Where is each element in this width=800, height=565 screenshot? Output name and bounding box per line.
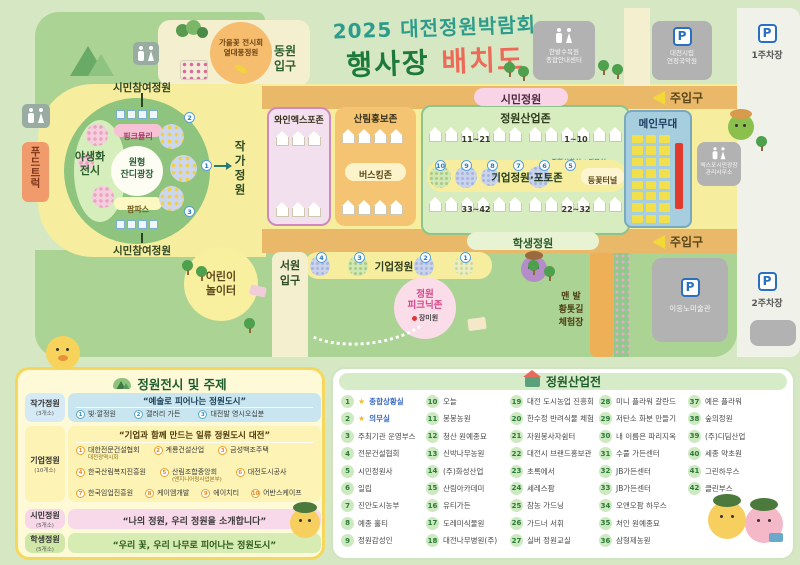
mascot-eye-icon bbox=[299, 519, 302, 522]
exhibit-name: 한국산림복지진흥원 bbox=[88, 468, 146, 477]
booth-name: 삼형제농원 bbox=[616, 535, 651, 546]
flower-plot-icon bbox=[159, 124, 184, 149]
section-items-row: 1대한전문건설협회대전광역시회2계룡건설산업3금성백조주택 bbox=[76, 446, 269, 462]
tent-icon bbox=[292, 137, 305, 146]
seat-icon bbox=[646, 169, 657, 177]
wisteria-tunnel-pill: 등꽃터널 bbox=[581, 168, 624, 185]
plot-number-badge: 2 bbox=[420, 252, 431, 263]
tent-icon bbox=[342, 135, 355, 144]
exhibit-item: 2계룡건설산업 bbox=[154, 446, 205, 462]
exhibit-number: 8 bbox=[145, 489, 154, 498]
seowon-gate-label: 서원 입구 bbox=[272, 258, 308, 288]
section-label-student: 학생정원 (5개소) bbox=[25, 533, 65, 553]
booth-item: 26가드너 서휘 bbox=[510, 517, 594, 530]
booth-item: 34오앤오팜 하우스 bbox=[599, 499, 676, 512]
stall-icon bbox=[127, 220, 136, 229]
booth-item: 7진안도시농부 bbox=[341, 499, 416, 512]
main-stage-zone: 메인무대 bbox=[624, 110, 692, 228]
mountain-icon bbox=[88, 54, 114, 76]
exhibit-name: 계룡건설산업 bbox=[166, 446, 205, 455]
stall-row bbox=[116, 220, 158, 229]
restroom-figures-icon bbox=[138, 46, 155, 62]
booth-item: 32JB가든센터 bbox=[599, 465, 676, 478]
mascot-eye-icon bbox=[720, 515, 723, 518]
info-center-label: 한밭수목원 종합안내센터 bbox=[533, 48, 595, 64]
booth-name: 미니 플라워 갈란드 bbox=[616, 396, 676, 407]
tent-icon bbox=[308, 208, 321, 217]
seat-icon bbox=[659, 158, 670, 166]
booth-item: 13신박나무농원 bbox=[426, 447, 497, 460]
tent-icon bbox=[276, 208, 289, 217]
busking-zone-label: 버스킹존 bbox=[359, 171, 392, 181]
mascot-icon bbox=[708, 501, 746, 539]
citizen-participation-label-bottom: 시민참여정원 bbox=[104, 243, 180, 258]
booth-number: 22 bbox=[510, 447, 523, 460]
industry-expo-panel: 정원산업전 1★종합상황실2★의무실3주최기관 운영부스4전문건설협회5시민정원… bbox=[331, 367, 795, 560]
booth-name: 오늘 bbox=[443, 396, 457, 407]
booth-item: 23초록에서 bbox=[510, 465, 594, 478]
industry-panel-header: 정원산업전 bbox=[339, 373, 787, 390]
tent-group-label: 1~10 bbox=[529, 135, 623, 144]
booth-name: 참농 가드닝 bbox=[527, 500, 564, 511]
booth-name: 예종 홀티 bbox=[358, 518, 388, 529]
star-icon: ★ bbox=[358, 398, 365, 406]
parking1-area: P 1주차장 bbox=[737, 24, 797, 61]
exhibit-number: 2 bbox=[134, 410, 143, 419]
seat-icon bbox=[659, 169, 670, 177]
main-gate-top-label: 주입구 bbox=[670, 89, 703, 106]
exhibit-name: 갤러리 가든 bbox=[146, 410, 180, 419]
gate-arrow-icon bbox=[652, 91, 665, 105]
stall-icon bbox=[138, 110, 147, 119]
exhibit-subname: 대전광역시회 bbox=[88, 455, 140, 462]
main-gate-bottom-label: 주입구 bbox=[670, 233, 703, 250]
section-items-row: 4한국산림복지진흥원5산림조합중앙회(엔지니어링사업본부)6대전도시공사 bbox=[76, 468, 286, 484]
mascot-icon bbox=[745, 505, 783, 543]
booth-name: 산림아카데미 bbox=[443, 483, 484, 494]
booth-name: (주)화성산업 bbox=[443, 466, 483, 477]
exhibition-panel-header: 정원전시 및 주제 bbox=[18, 374, 322, 393]
booth-number: 33 bbox=[599, 482, 612, 495]
stall-icon bbox=[127, 110, 136, 119]
seat-icon bbox=[659, 203, 670, 211]
seat-icon bbox=[659, 215, 670, 223]
booth-item: 24세레스팜 bbox=[510, 482, 594, 495]
booth-name: 실버 정원교실 bbox=[527, 535, 571, 546]
corp-garden-band-label: 기업정원 bbox=[372, 259, 416, 274]
stall-row bbox=[116, 110, 158, 119]
booth-name: 세레스팜 bbox=[527, 483, 555, 494]
section-quote: “예술로 피어나는 정원도시” bbox=[68, 395, 321, 407]
booth-number: 11 bbox=[426, 412, 439, 425]
booth-item: 1★종합상황실 bbox=[341, 395, 416, 408]
booth-name: 대전시 브랜드홍보관 bbox=[527, 448, 591, 459]
booth-number: 24 bbox=[510, 482, 523, 495]
artist-garden-arrow-icon bbox=[214, 165, 226, 167]
booth-number: 31 bbox=[599, 447, 612, 460]
seat-icon bbox=[646, 215, 657, 223]
plot-number-badge: 3 bbox=[354, 252, 365, 263]
tree-icon bbox=[182, 260, 193, 271]
section-label-text: 시민정원 bbox=[30, 510, 59, 521]
booth-number: 35 bbox=[599, 517, 612, 530]
food-truck-label: 푸드트럭 bbox=[28, 146, 43, 188]
booth-item: 12청산 원예종묘 bbox=[426, 430, 497, 443]
exhibit-name: 한국임업진흥원 bbox=[88, 489, 133, 498]
booth-item: 8예종 홀티 bbox=[341, 517, 416, 530]
booth-name: 도레미식물원 bbox=[443, 518, 484, 529]
plot-number-badge: 2 bbox=[184, 112, 195, 123]
gate-path-top bbox=[624, 8, 650, 86]
tree-icon bbox=[244, 318, 255, 329]
flower-plot-icon bbox=[159, 186, 184, 211]
industry-panel-title: 정원산업전 bbox=[546, 373, 601, 390]
music-center-box: P 대전시립 연정국악원 bbox=[652, 21, 712, 80]
booth-item: 27실버 정원교실 bbox=[510, 534, 594, 547]
info-center-box: 한밭수목원 종합안내센터 bbox=[533, 21, 595, 80]
seat-icon bbox=[646, 192, 657, 200]
tent-group: 33~42 bbox=[429, 197, 523, 212]
booth-name: 봉봉농원 bbox=[443, 413, 471, 424]
poster-title-venue: 행사장 bbox=[346, 46, 430, 82]
watering-can-icon bbox=[769, 533, 783, 542]
exhibit-item: 10어반스케이프 bbox=[251, 489, 302, 498]
booth-number: 23 bbox=[510, 465, 523, 478]
section-count-text: (10개소) bbox=[34, 466, 55, 474]
booth-column: 1★종합상황실2★의무실3주최기관 운영부스4전문건설협회5시민정원사6일립7진… bbox=[341, 395, 416, 547]
exhibition-panel: 정원전시 및 주제 작가정원 (3개소) “예술로 피어나는 정원도시” 1빛·… bbox=[15, 367, 325, 560]
tent-row bbox=[276, 202, 321, 217]
parking-p: P bbox=[652, 27, 712, 46]
mascot-eye-icon bbox=[743, 124, 746, 127]
booth-name: (주)디딤산업 bbox=[705, 431, 745, 442]
poster-title: 2025 대전정원박람회 행사장 배치도 bbox=[299, 7, 571, 85]
booth-number: 4 bbox=[341, 447, 354, 460]
section-content-student: “우리 꽃, 우리 나무로 피어나는 정원도시” bbox=[68, 533, 321, 553]
tree-icon bbox=[196, 266, 207, 277]
circular-lawn: 원형 잔디광장 bbox=[111, 146, 163, 196]
booth-item: 41그린하우스 bbox=[688, 465, 745, 478]
mascot-hat-icon bbox=[730, 109, 752, 119]
booth-name: 초록에서 bbox=[527, 466, 555, 477]
mascot-eye-icon bbox=[66, 348, 69, 351]
citizen-garden-pill: 시민정원 bbox=[474, 88, 568, 106]
stall-icon bbox=[149, 220, 158, 229]
exhibit-name: 금성백조주택 bbox=[230, 446, 269, 455]
exhibit-name: 에이치티 bbox=[213, 489, 239, 498]
seat-icon bbox=[646, 158, 657, 166]
exhibit-item: 3대전발 영시오십분 bbox=[198, 410, 264, 419]
mascot-eye-icon bbox=[757, 519, 760, 522]
booth-number: 26 bbox=[510, 517, 523, 530]
expo-office-label: 엑스포시민광장 관리사무소 bbox=[697, 163, 741, 177]
booth-item: 25참농 가드닝 bbox=[510, 499, 594, 512]
exhibit-name-stack: 대전도시공사 bbox=[248, 468, 287, 477]
booth-number: 25 bbox=[510, 499, 523, 512]
tree-icon bbox=[612, 64, 623, 75]
exhibit-number: 1 bbox=[76, 410, 85, 419]
banana-icon bbox=[233, 63, 248, 75]
booth-name: 세종 약초원 bbox=[705, 448, 742, 459]
seat-icon bbox=[646, 135, 657, 143]
flowerbed-icon bbox=[180, 60, 208, 80]
stage-seats bbox=[632, 135, 670, 223]
wisteria-tunnel-label: 등꽃터널 bbox=[588, 176, 617, 185]
restroom-icon bbox=[22, 104, 50, 128]
exhibit-name: 대전발 영시오십분 bbox=[210, 410, 264, 419]
flower-cluster-icon bbox=[92, 186, 114, 208]
booth-item: 15산림아카데미 bbox=[426, 482, 497, 495]
plot-number-badge: 3 bbox=[184, 206, 195, 217]
booth-item: 30내 이름은 파리지옥 bbox=[599, 430, 676, 443]
section-content-citizen: “나의 정원, 우리 정원을 소개합니다” bbox=[68, 509, 321, 529]
forest-promo-label: 산림홍보존 bbox=[335, 111, 416, 125]
plot-number-badge: 1 bbox=[201, 160, 212, 171]
booth-name: JB가든센터 bbox=[616, 483, 651, 494]
pink-muhly-label: 핑크뮬리 bbox=[123, 132, 152, 141]
booth-number: 2 bbox=[341, 412, 354, 425]
divider bbox=[76, 407, 313, 408]
booth-name: 처인 원예종묘 bbox=[616, 518, 660, 529]
main-gate-top: 주입구 bbox=[652, 89, 703, 106]
seat-icon bbox=[632, 203, 643, 211]
exhibit-number: 7 bbox=[76, 489, 85, 498]
booth-name: JB가든센터 bbox=[616, 466, 651, 477]
tent-icon bbox=[308, 137, 321, 146]
tent-icon bbox=[276, 137, 289, 146]
tent-group-label: 11~21 bbox=[429, 135, 523, 144]
booth-number: 6 bbox=[341, 482, 354, 495]
plot-number-badge: 4 bbox=[316, 252, 327, 263]
clay-path bbox=[590, 253, 614, 357]
section-content-artist: “예술로 피어나는 정원도시” 1빛·깔정원2갤러리 가든3대전발 영시오십분 bbox=[68, 393, 321, 422]
barefoot-path-label: 맨 발 황톳길 체험장 bbox=[550, 291, 592, 330]
exhibit-name: 빛·깔정원 bbox=[88, 410, 116, 419]
booth-number: 34 bbox=[599, 499, 612, 512]
booth-item: 21자원봉사자쉼터 bbox=[510, 430, 594, 443]
section-label-text: 작가정원 bbox=[30, 398, 59, 409]
main-gate-bottom: 주입구 bbox=[652, 233, 703, 250]
booth-item: 3주최기관 운영부스 bbox=[341, 430, 416, 443]
plot-number-badge: 1 bbox=[460, 252, 471, 263]
garden-industry-label: 정원산업존 bbox=[423, 110, 628, 126]
seat-icon bbox=[659, 146, 670, 154]
restroom-figures-icon bbox=[533, 21, 595, 44]
booth-number: 18 bbox=[426, 534, 439, 547]
artist-garden-label: 작가정원 bbox=[232, 140, 248, 198]
forest-promo-zone: 산림홍보존 버스킹존 bbox=[335, 107, 416, 226]
exhibit-item: 1빛·깔정원 bbox=[76, 410, 116, 419]
exhibit-name: 대한전문건설협회 bbox=[88, 446, 140, 455]
booth-name: 대전나무병원(주) bbox=[443, 535, 497, 546]
parking1-label: 1주차장 bbox=[737, 48, 797, 61]
mascot-icon bbox=[728, 114, 754, 140]
garden-industry-zone: 정원산업존 11~21 1~10 ★ 종합상황실 / 의무실 10 9 8 7 … bbox=[421, 105, 630, 235]
food-truck-zone: 푸드트럭 bbox=[22, 142, 49, 202]
flower-plot-icon bbox=[170, 155, 197, 182]
booth-number: 38 bbox=[688, 412, 701, 425]
booth-number: 42 bbox=[688, 482, 701, 495]
booth-item: 9정원감성인 bbox=[341, 534, 416, 547]
booth-name: 가드너 서휘 bbox=[527, 518, 564, 529]
restroom-figures-icon bbox=[28, 108, 45, 124]
exhibit-number: 3 bbox=[218, 446, 227, 455]
exhibit-item: 7한국임업진흥원 bbox=[76, 489, 133, 498]
booth-number: 32 bbox=[599, 465, 612, 478]
booth-item: 35처인 원예종묘 bbox=[599, 517, 676, 530]
music-center-label: 대전시립 연정국악원 bbox=[652, 49, 712, 65]
parking2-area: P 2주차장 bbox=[737, 272, 797, 309]
tree-icon bbox=[756, 136, 767, 147]
expo-office-box: 엑스포시민광장 관리사무소 bbox=[697, 142, 741, 186]
seat-icon bbox=[632, 158, 643, 166]
mascot-hat-icon bbox=[525, 251, 543, 260]
section-count-text: (3개소) bbox=[36, 409, 54, 417]
autumn-flower-badge: 가을꽃 전시회 열대풍정원 bbox=[210, 22, 272, 84]
booth-number: 15 bbox=[426, 482, 439, 495]
booth-number: 16 bbox=[426, 499, 439, 512]
booth-number: 27 bbox=[510, 534, 523, 547]
mascot-icon bbox=[46, 336, 80, 370]
booth-item: 28미니 플라워 갈란드 bbox=[599, 395, 676, 408]
booth-name: 시민정원사 bbox=[358, 466, 393, 477]
seat-icon bbox=[646, 146, 657, 154]
booth-item: 20한수정 반려식물 체험 bbox=[510, 412, 594, 425]
tent-group-label: 33~42 bbox=[429, 205, 523, 214]
seat-icon bbox=[632, 135, 643, 143]
stage-icon bbox=[675, 143, 683, 209]
booth-name: 저탄소 화분 만들기 bbox=[616, 413, 676, 424]
booth-number: 13 bbox=[426, 447, 439, 460]
booth-number: 37 bbox=[688, 395, 701, 408]
section-content-corp: “기업과 함께 만드는 일류 정원도시 대전” 1대한전문건설협회대전광역시회2… bbox=[68, 426, 321, 502]
booth-number: 5 bbox=[341, 465, 354, 478]
exhibit-name-stack: 계룡건설산업 bbox=[166, 446, 205, 455]
mascot-icon bbox=[290, 508, 320, 538]
wine-expo-zone: 와인엑스포존 bbox=[267, 107, 331, 226]
parking2-label: 2주차장 bbox=[737, 296, 797, 309]
booth-name: 정원감성인 bbox=[358, 535, 393, 546]
exhibit-number: 9 bbox=[201, 489, 210, 498]
booth-item: 29저탄소 화분 만들기 bbox=[599, 412, 676, 425]
section-quote: “우리 꽃, 우리 나무로 피어나는 정원도시” bbox=[113, 541, 276, 551]
seat-icon bbox=[646, 203, 657, 211]
section-label-text: 학생정원 bbox=[30, 534, 59, 545]
poster-title-layout: 배치도 bbox=[441, 43, 525, 79]
booth-number: 3 bbox=[341, 430, 354, 443]
booth-item: 38숲의정원 bbox=[688, 412, 745, 425]
booth-name: 전문건설협회 bbox=[358, 448, 399, 459]
seat-icon bbox=[632, 215, 643, 223]
booth-name: 숲의정원 bbox=[705, 413, 733, 424]
wildflower-label: 야생화 전시 bbox=[62, 150, 118, 178]
booth-name: 한수정 반려식물 체험 bbox=[527, 413, 594, 424]
seat-icon bbox=[659, 192, 670, 200]
booth-item: 36삼형제농원 bbox=[599, 534, 676, 547]
section-quote: “나의 정원, 우리 정원을 소개합니다” bbox=[123, 517, 267, 527]
booth-item: 31수풀 가든센터 bbox=[599, 447, 676, 460]
tent-icon bbox=[342, 206, 355, 215]
booth-column: 19대전 도시농업 진흥회20한수정 반려식물 체험21자원봉사자쉼터22대전시… bbox=[510, 395, 594, 547]
booth-name: 일립 bbox=[358, 483, 372, 494]
flower-hedge bbox=[614, 253, 629, 357]
gate-arrow-icon bbox=[652, 235, 665, 249]
booth-item: 11봉봉농원 bbox=[426, 412, 497, 425]
tree-icon bbox=[504, 62, 515, 73]
stall-icon bbox=[138, 220, 147, 229]
section-label-citizen: 시민정원 (5개소) bbox=[25, 509, 65, 529]
busking-zone-pill: 버스킹존 bbox=[345, 163, 406, 181]
mascot-hat-icon bbox=[293, 502, 317, 513]
mascot-eye-icon bbox=[768, 519, 771, 522]
museum-label: 이응노미술관 bbox=[652, 303, 728, 314]
exhibit-item: 2갤러리 가든 bbox=[134, 410, 180, 419]
booth-name: 클린부스 bbox=[705, 483, 733, 494]
booth-number: 12 bbox=[426, 430, 439, 443]
mascot-hat-icon bbox=[713, 494, 741, 507]
section-label-text: 기업정원 bbox=[30, 455, 59, 466]
booth-number: 21 bbox=[510, 430, 523, 443]
tent-row bbox=[342, 200, 403, 215]
stall-icon bbox=[116, 220, 125, 229]
booth-number: 7 bbox=[341, 499, 354, 512]
seat-icon bbox=[632, 192, 643, 200]
booth-name: 그린하우스 bbox=[705, 466, 740, 477]
exhibit-item: 4한국산림복지진흥원 bbox=[76, 468, 146, 484]
booth-number: 8 bbox=[341, 517, 354, 530]
seat-icon bbox=[632, 169, 643, 177]
section-items-row: 7한국임업진흥원8케이엠개발9에이치티10어반스케이프 bbox=[76, 489, 302, 498]
mascot-hat-icon bbox=[750, 498, 778, 511]
booth-name: 진안도시농부 bbox=[358, 500, 399, 511]
booth-name: 내 이름은 파리지옥 bbox=[616, 431, 676, 442]
exhibit-name-stack: 갤러리 가든 bbox=[146, 410, 180, 419]
exhibit-number: 6 bbox=[236, 468, 245, 477]
booth-item: 14(주)화성산업 bbox=[426, 465, 497, 478]
tent-group-label: 22~32 bbox=[529, 205, 623, 214]
pampas-label: 팜파스 bbox=[127, 205, 149, 214]
booth-name: 종합상황실 bbox=[369, 396, 404, 407]
exhibit-name-stack: 금성백조주택 bbox=[230, 446, 269, 455]
divider bbox=[76, 442, 313, 443]
booth-item: 40세종 약초원 bbox=[688, 447, 745, 460]
tent-icon bbox=[374, 135, 387, 144]
museum-box: P 이응노미술관 bbox=[652, 258, 728, 342]
booth-number: 17 bbox=[426, 517, 439, 530]
label-connector bbox=[141, 93, 143, 107]
mountain-badge-icon bbox=[113, 378, 131, 389]
booth-name: 수풀 가든센터 bbox=[616, 448, 660, 459]
tent-icon bbox=[390, 206, 403, 215]
student-garden-label: 학생정원 bbox=[513, 237, 553, 250]
mascot-eye-icon bbox=[308, 519, 311, 522]
booth-item: 42클린부스 bbox=[688, 482, 745, 495]
tent-group: 1~10 bbox=[529, 127, 623, 142]
section-quote: “기업과 함께 만드는 일류 정원도시 대전” bbox=[68, 429, 321, 441]
plant-icon bbox=[197, 27, 208, 38]
plot-number-badge: 10 bbox=[435, 160, 446, 171]
circular-lawn-label: 원형 잔디광장 bbox=[111, 146, 163, 181]
booth-number: 36 bbox=[599, 534, 612, 547]
booth-number: 28 bbox=[599, 395, 612, 408]
tent-badge-icon bbox=[525, 376, 540, 387]
booth-number: 1 bbox=[341, 395, 354, 408]
booth-name: 자원봉사자쉼터 bbox=[527, 431, 575, 442]
exhibit-name: 대전도시공사 bbox=[248, 468, 287, 477]
booth-item: 6일립 bbox=[341, 482, 416, 495]
exhibit-number: 5 bbox=[160, 468, 169, 477]
section-count-text: (5개소) bbox=[36, 521, 54, 529]
